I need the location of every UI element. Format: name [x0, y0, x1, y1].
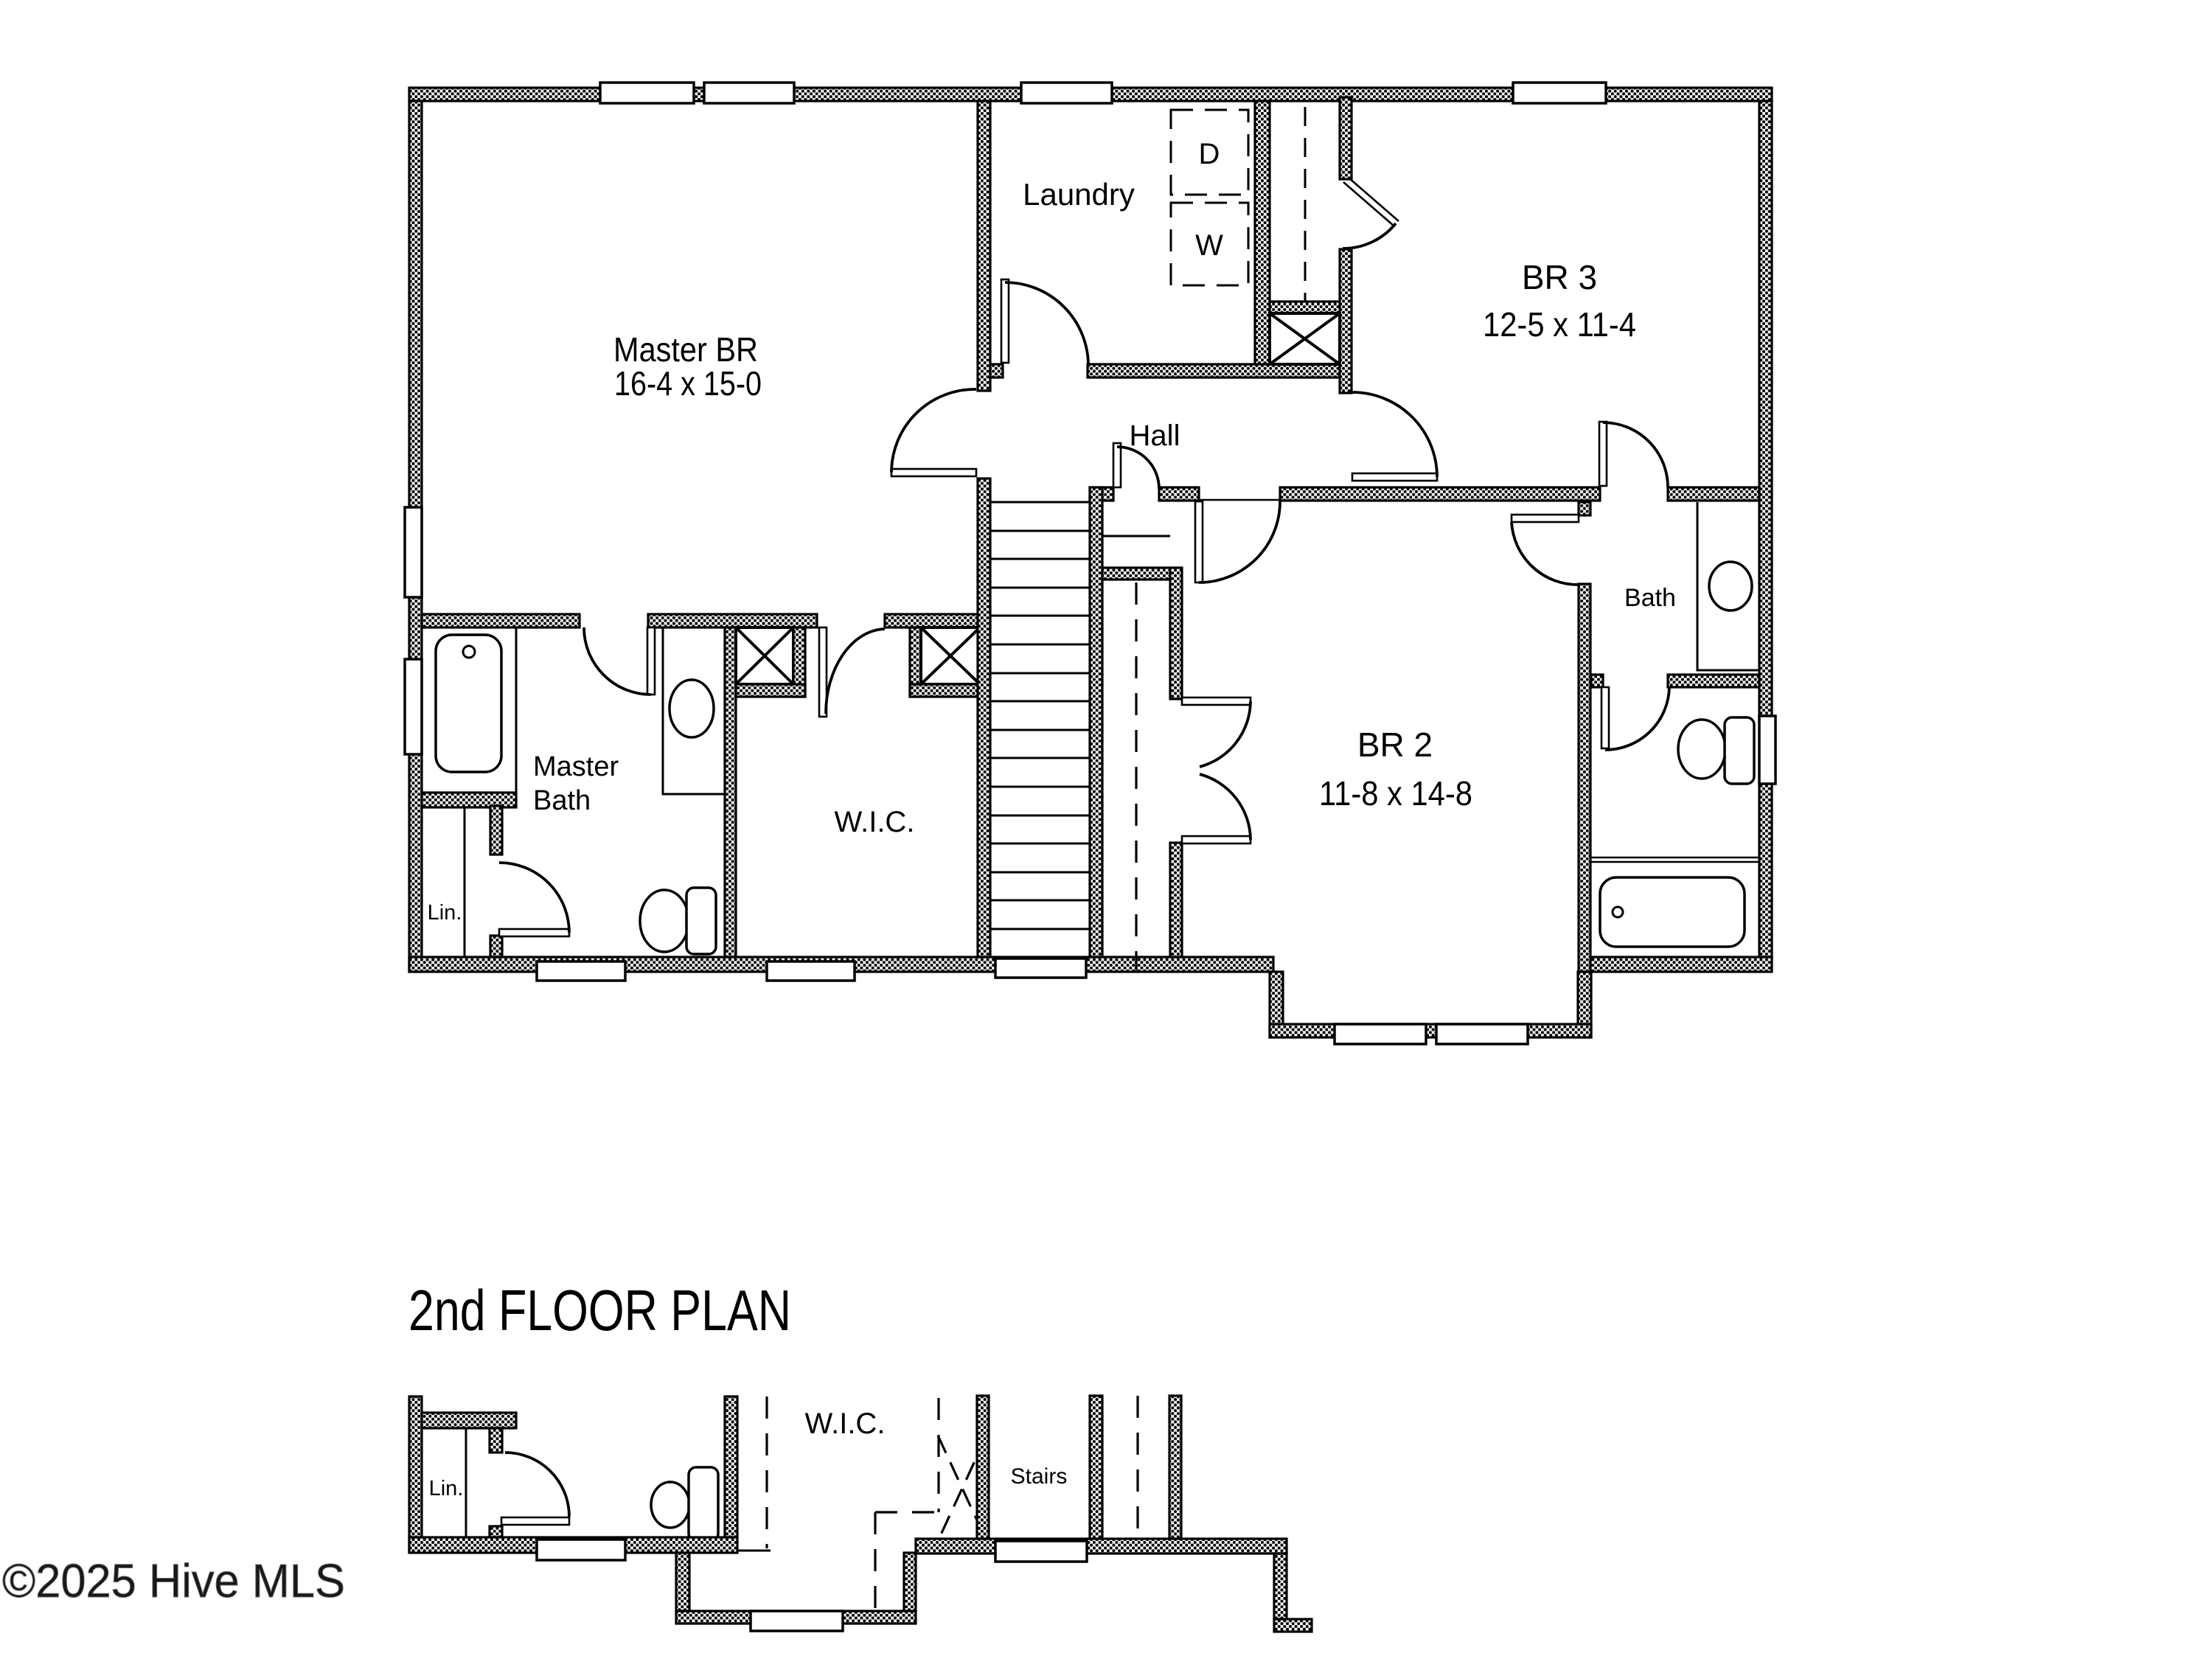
svg-text:W.I.C.: W.I.C.	[835, 806, 915, 838]
svg-text:Bath: Bath	[1624, 584, 1676, 612]
svg-text:Lin.: Lin.	[428, 901, 462, 925]
svg-text:Master: Master	[533, 751, 619, 782]
svg-text:Bath: Bath	[533, 785, 591, 816]
svg-text:Laundry: Laundry	[1023, 177, 1135, 212]
svg-text:D: D	[1199, 138, 1220, 170]
svg-text:©2025 Hive MLS: ©2025 Hive MLS	[2, 1554, 345, 1607]
svg-text:W.I.C.: W.I.C.	[805, 1408, 886, 1440]
svg-text:11-8 x 14-8: 11-8 x 14-8	[1319, 774, 1472, 813]
svg-text:Stairs: Stairs	[1011, 1464, 1068, 1489]
svg-text:Hall: Hall	[1130, 420, 1180, 452]
svg-text:Master BR: Master BR	[613, 330, 758, 369]
svg-text:12-5 x 11-4: 12-5 x 11-4	[1483, 305, 1636, 344]
svg-text:2nd FLOOR PLAN: 2nd FLOOR PLAN	[408, 1278, 791, 1343]
svg-text:BR 3: BR 3	[1522, 258, 1597, 296]
svg-text:Lin.: Lin.	[429, 1477, 464, 1500]
svg-text:BR 2: BR 2	[1357, 726, 1433, 764]
svg-text:W: W	[1195, 229, 1223, 262]
svg-text:16-4 x 15-0: 16-4 x 15-0	[614, 364, 762, 403]
